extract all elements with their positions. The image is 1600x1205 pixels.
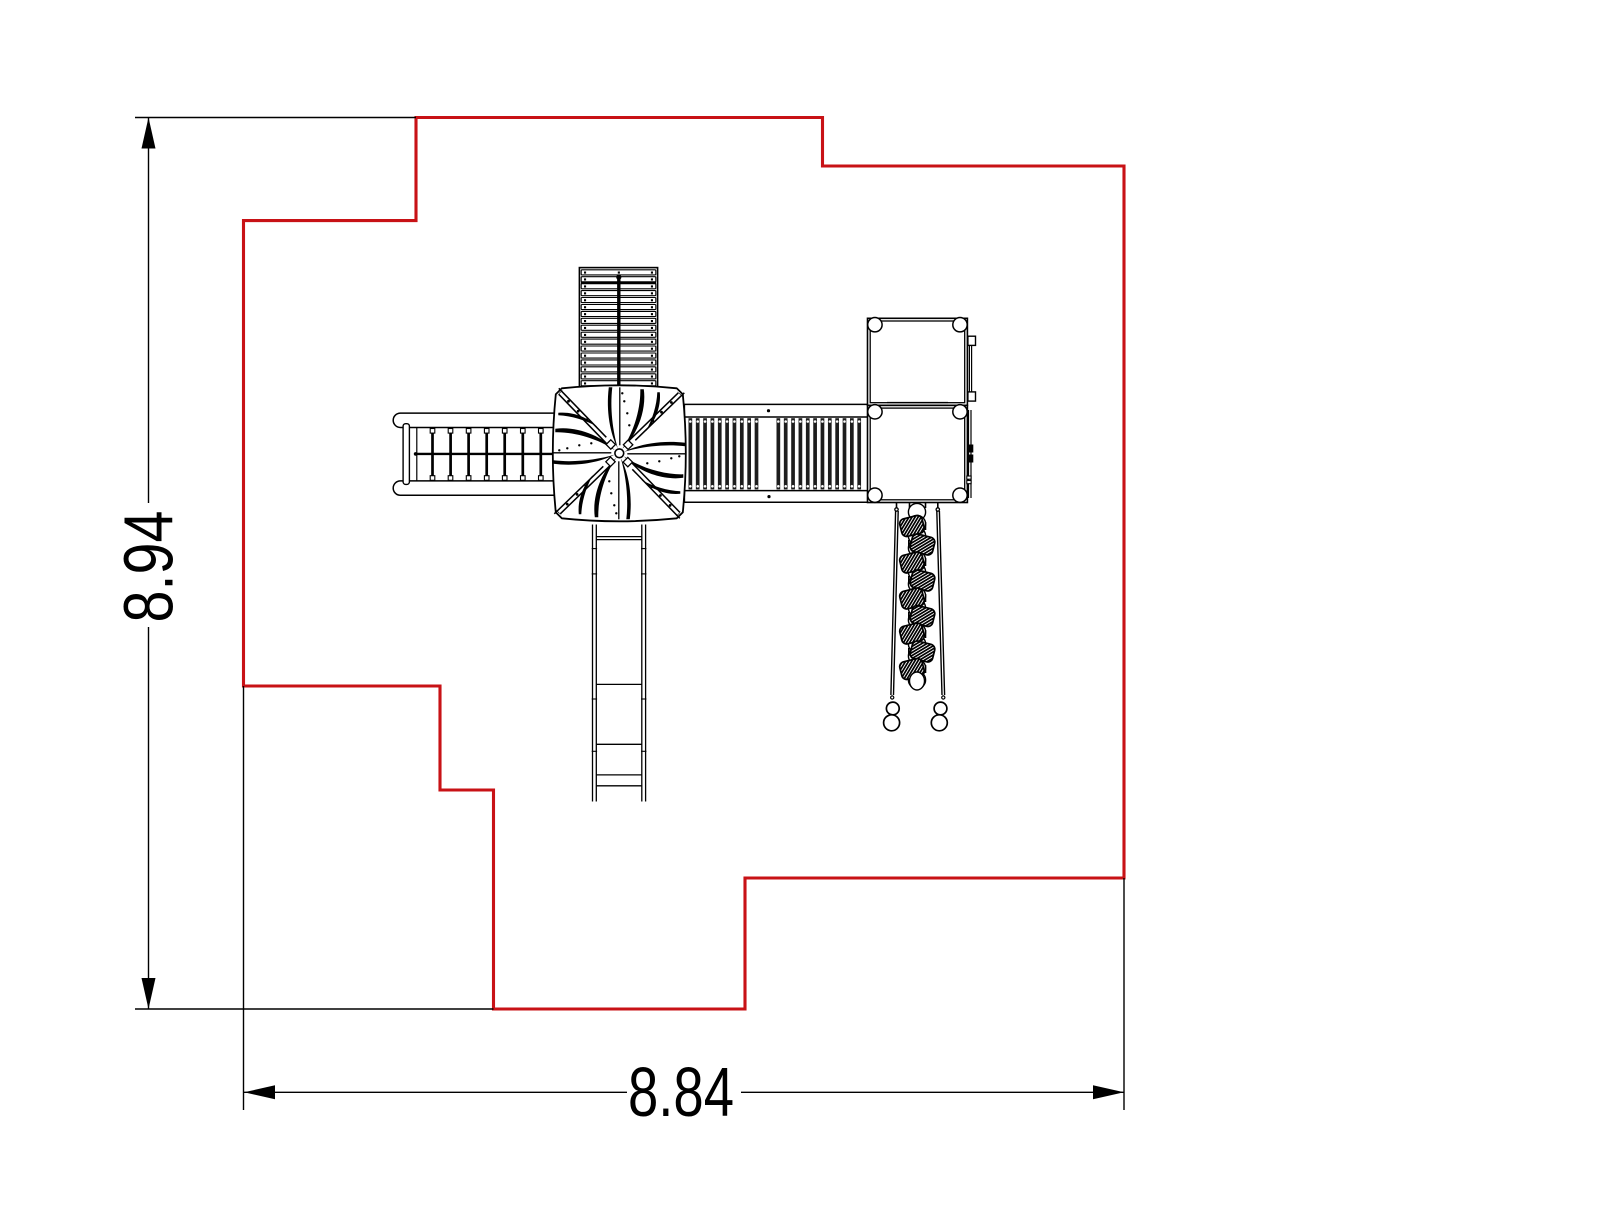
svg-text:8.84: 8.84 bbox=[628, 1053, 734, 1131]
svg-text:8.94: 8.94 bbox=[110, 511, 188, 623]
